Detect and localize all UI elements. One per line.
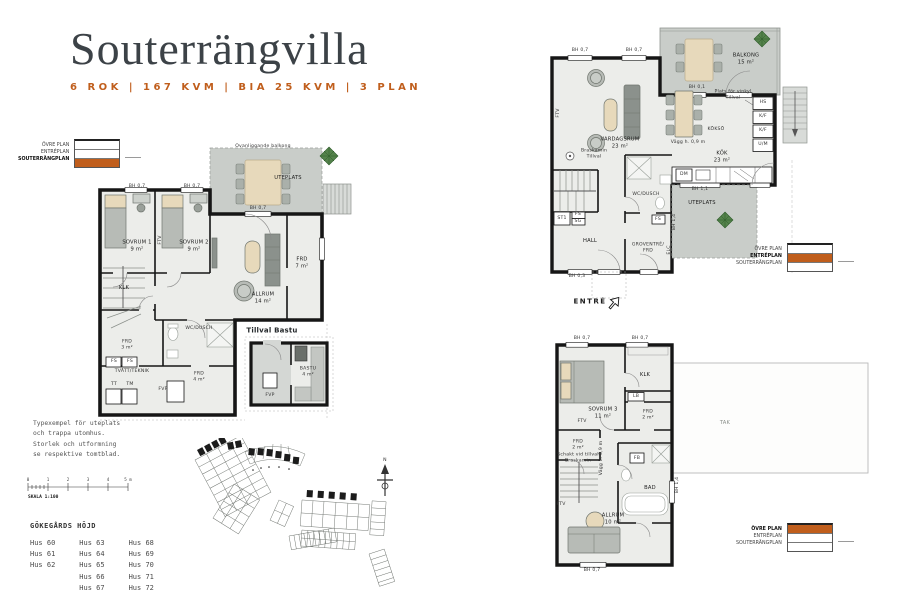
footer-note: Typexempel för uteplats och trappa utomh…: [33, 419, 120, 461]
room-label-frd2: FRD 2 m²: [572, 439, 584, 450]
window-height-label: BH 1,1: [692, 187, 709, 193]
house-column: Hus 68 Hus 69 Hus 70 Hus 71 Hus 72: [129, 538, 154, 594]
legend-row-sout: SOUTERRÄNGPLAN: [18, 156, 69, 163]
label-elc: ELC: [667, 245, 673, 254]
house-item: Hus 69: [129, 549, 154, 560]
legend-row-sout: SOUTERRÄNGPLAN: [736, 540, 782, 547]
label-kitchen-island: KÖKSÖ: [708, 127, 725, 133]
scale-tick-label: 3: [87, 477, 90, 482]
bastu-drawing: [243, 323, 335, 415]
entre-arrow-icon: [606, 294, 623, 311]
note-wall-height: Vägg h. 0,9 m: [599, 441, 605, 476]
roof-area: [672, 363, 868, 473]
room-label-wcdusch: WC/DUSCH: [185, 326, 212, 332]
roof-label-tak: TAK: [720, 420, 730, 427]
ftv-label: FTV: [158, 235, 164, 244]
room-label-groventre: GROVENTRÉ/ FRD: [632, 242, 664, 253]
north-label: N: [383, 458, 387, 464]
room-label-wcdusch: WC/DUSCH: [632, 192, 659, 198]
window-height-label: BH 0,7: [632, 336, 649, 342]
house-list: GÖKEGÅRDS HÖJD Hus 60 Hus 61 Hus 62 Hus …: [30, 522, 154, 594]
note-fireplace-option: Braskamin Tillval: [581, 148, 607, 159]
house-item: Hus 60: [30, 538, 55, 549]
room-label-kok: KÖK 23 m²: [714, 151, 730, 164]
window-height-label: BH 1,4: [672, 214, 678, 231]
legend-row-ovre: ÖVRE PLAN: [42, 142, 69, 149]
legend-tail-line: [838, 261, 854, 262]
scale-tick-label: 4: [107, 477, 110, 482]
room-label-klk: KLK: [640, 372, 650, 379]
house-item: Hus 67: [79, 583, 104, 594]
legend-row-entre: ENTRÉPLAN: [753, 533, 781, 540]
window-height-label: BH 0,7: [574, 336, 591, 342]
outdoor-stairs: [783, 87, 807, 143]
legend-row-entre: ENTRÉPLAN: [41, 149, 69, 156]
window-height-label: BH 0,7: [250, 206, 267, 212]
outdoor-stairs: [323, 184, 351, 214]
closet-label-lb: LB: [633, 394, 639, 400]
legend-section-icon: [787, 243, 833, 272]
window-height-label: BH 0,3: [569, 274, 586, 280]
ftv-label: FTV: [556, 502, 565, 508]
house-item: Hus 66: [79, 572, 104, 583]
room-label-bastu: BASTU 4 m²: [300, 366, 316, 377]
note-overlying-balcony: Ovanliggande balkong: [235, 144, 291, 150]
page-title: Souterrängvilla: [70, 22, 369, 75]
scale-tick-label: 1: [47, 477, 50, 482]
area-title: GÖKEGÅRDS HÖJD: [30, 522, 154, 530]
appliance-label-fvp: FVP: [265, 393, 274, 399]
house-column: Hus 63 Hus 64 Hus 65 Hus 66 Hus 67: [79, 538, 104, 594]
room-label-sovrum2: SOVRUM 2 9 m²: [179, 240, 208, 253]
appliance-label-kf: K/F: [759, 128, 767, 134]
ftv-label: FTV: [577, 419, 586, 425]
legend-row-ovre: ÖVRE PLAN: [754, 246, 781, 253]
legend-row-sout: SOUTERRÄNGPLAN: [736, 260, 782, 267]
brochure-page: Souterrängvilla 6 ROK | 167 KVM | BIA 25…: [0, 0, 900, 600]
scale-label: SKALA 1:100: [28, 494, 59, 500]
highlighted-houses: [197, 438, 357, 500]
house-item: Hus 70: [129, 560, 154, 571]
window-height-label: BH 0,7: [584, 568, 601, 574]
closet-label-st1: ST1: [557, 216, 566, 222]
legend-row-entre: ENTRÉPLAN: [750, 253, 782, 260]
house-column: Hus 60 Hus 61 Hus 62: [30, 538, 55, 594]
house-item: Hus 65: [79, 560, 104, 571]
house-item: Hus 63: [79, 538, 104, 549]
scale-tick-label: 0: [27, 477, 30, 482]
room-label-allrum: ALLRUM 14 m²: [252, 292, 274, 305]
room-label-frd4: FRD 4 m²: [193, 371, 205, 382]
legend-entreplan: ÖVRE PLAN ENTRÉPLAN SOUTERRÄNGPLAN: [736, 243, 854, 272]
appliance-label-tt: TT: [111, 382, 117, 388]
legend-tail-line: [838, 541, 854, 542]
room-label-uteplats: UTEPLATS: [274, 175, 302, 182]
room-label-frd7: FRD 7 m²: [296, 257, 309, 270]
appliance-label-fvp: FVP: [158, 387, 167, 393]
room-label-hall: HALL: [583, 238, 597, 245]
room-label-bad: BAD: [644, 485, 656, 492]
house-item: Hus 64: [79, 549, 104, 560]
tree-icon: [320, 147, 338, 165]
closet-label-fb: FB: [634, 456, 640, 462]
site-plan: [183, 438, 401, 596]
closet-label-sg: SG: [575, 219, 582, 225]
sauna-heater: [295, 346, 307, 361]
window-height-label: BH 0,7: [129, 184, 146, 190]
room-label-allrum: ALLRUM 10 m²: [602, 513, 624, 526]
appliance-label-tm: TM: [126, 382, 133, 388]
appliance-label-kf: K/F: [759, 114, 767, 120]
entre-label: ENTRÉ: [573, 298, 606, 307]
room-label-tvatt: TVÄTT/TEKNIK: [115, 369, 149, 375]
room-label-frd2: FRD 2 m²: [642, 409, 654, 420]
room-label-frd3: FRD 3 m²: [121, 339, 133, 350]
note-schakt: Schakt vid tillval Braskamin: [557, 452, 599, 463]
window-height-label: BH 0,1: [689, 85, 706, 91]
window-height-label: BH 1,4: [675, 477, 681, 494]
note-wall-height: Vägg h. 0,9 m: [671, 140, 706, 146]
legend-row-ovre: ÖVRE PLAN: [751, 526, 782, 533]
window-height-label: BH 0,7: [184, 184, 201, 190]
house-item: Hus 71: [129, 572, 154, 583]
scale-tick-label: 5 m: [124, 477, 132, 482]
window-height-label: BH 0,7: [626, 48, 643, 54]
room-label-klk: KLK: [119, 285, 129, 292]
window-height-label: BH 0,7: [572, 48, 589, 54]
page-subtitle: 6 ROK | 167 KVM | BIA 25 KVM | 3 PLAN: [70, 82, 421, 93]
appliance-label-um: U/M: [758, 142, 767, 148]
closet-label-fs: FS: [655, 217, 661, 223]
room-label-uteplats: UTEPLATS: [688, 200, 716, 207]
house-item: Hus 68: [129, 538, 154, 549]
closet-label-fs: FS: [111, 359, 117, 365]
house-item: Hus 72: [129, 583, 154, 594]
ftv-label: FTV: [556, 108, 562, 117]
room-label-sovrum3: SOVRUM 3 11 m²: [588, 407, 617, 420]
legend-section-icon: [787, 523, 833, 552]
legend-ovreplan: ÖVRE PLAN ENTRÉPLAN SOUTERRÄNGPLAN: [736, 523, 854, 552]
appliance-label-hs: HS: [760, 100, 767, 106]
room-label-sovrum1: SOVRUM 1 9 m²: [122, 240, 151, 253]
scale-tick-label: 2: [67, 477, 70, 482]
house-item: Hus 62: [30, 560, 55, 571]
room-label-balkong: BALKONG 15 m²: [733, 53, 760, 66]
north-arrow-icon: [370, 458, 400, 503]
scale-bar: 0 1 2 3 4 5 m SKALA 1:100: [24, 474, 136, 502]
note-wine-cooler: Plats för vinkyl Tillval: [715, 89, 752, 100]
closet-label-fs: FS: [575, 212, 581, 218]
appliance-label-dm: DM: [680, 172, 688, 178]
house-item: Hus 61: [30, 549, 55, 560]
bastu-title: Tillval Bastu: [246, 327, 297, 336]
closet-label-fs: FS: [127, 359, 133, 365]
